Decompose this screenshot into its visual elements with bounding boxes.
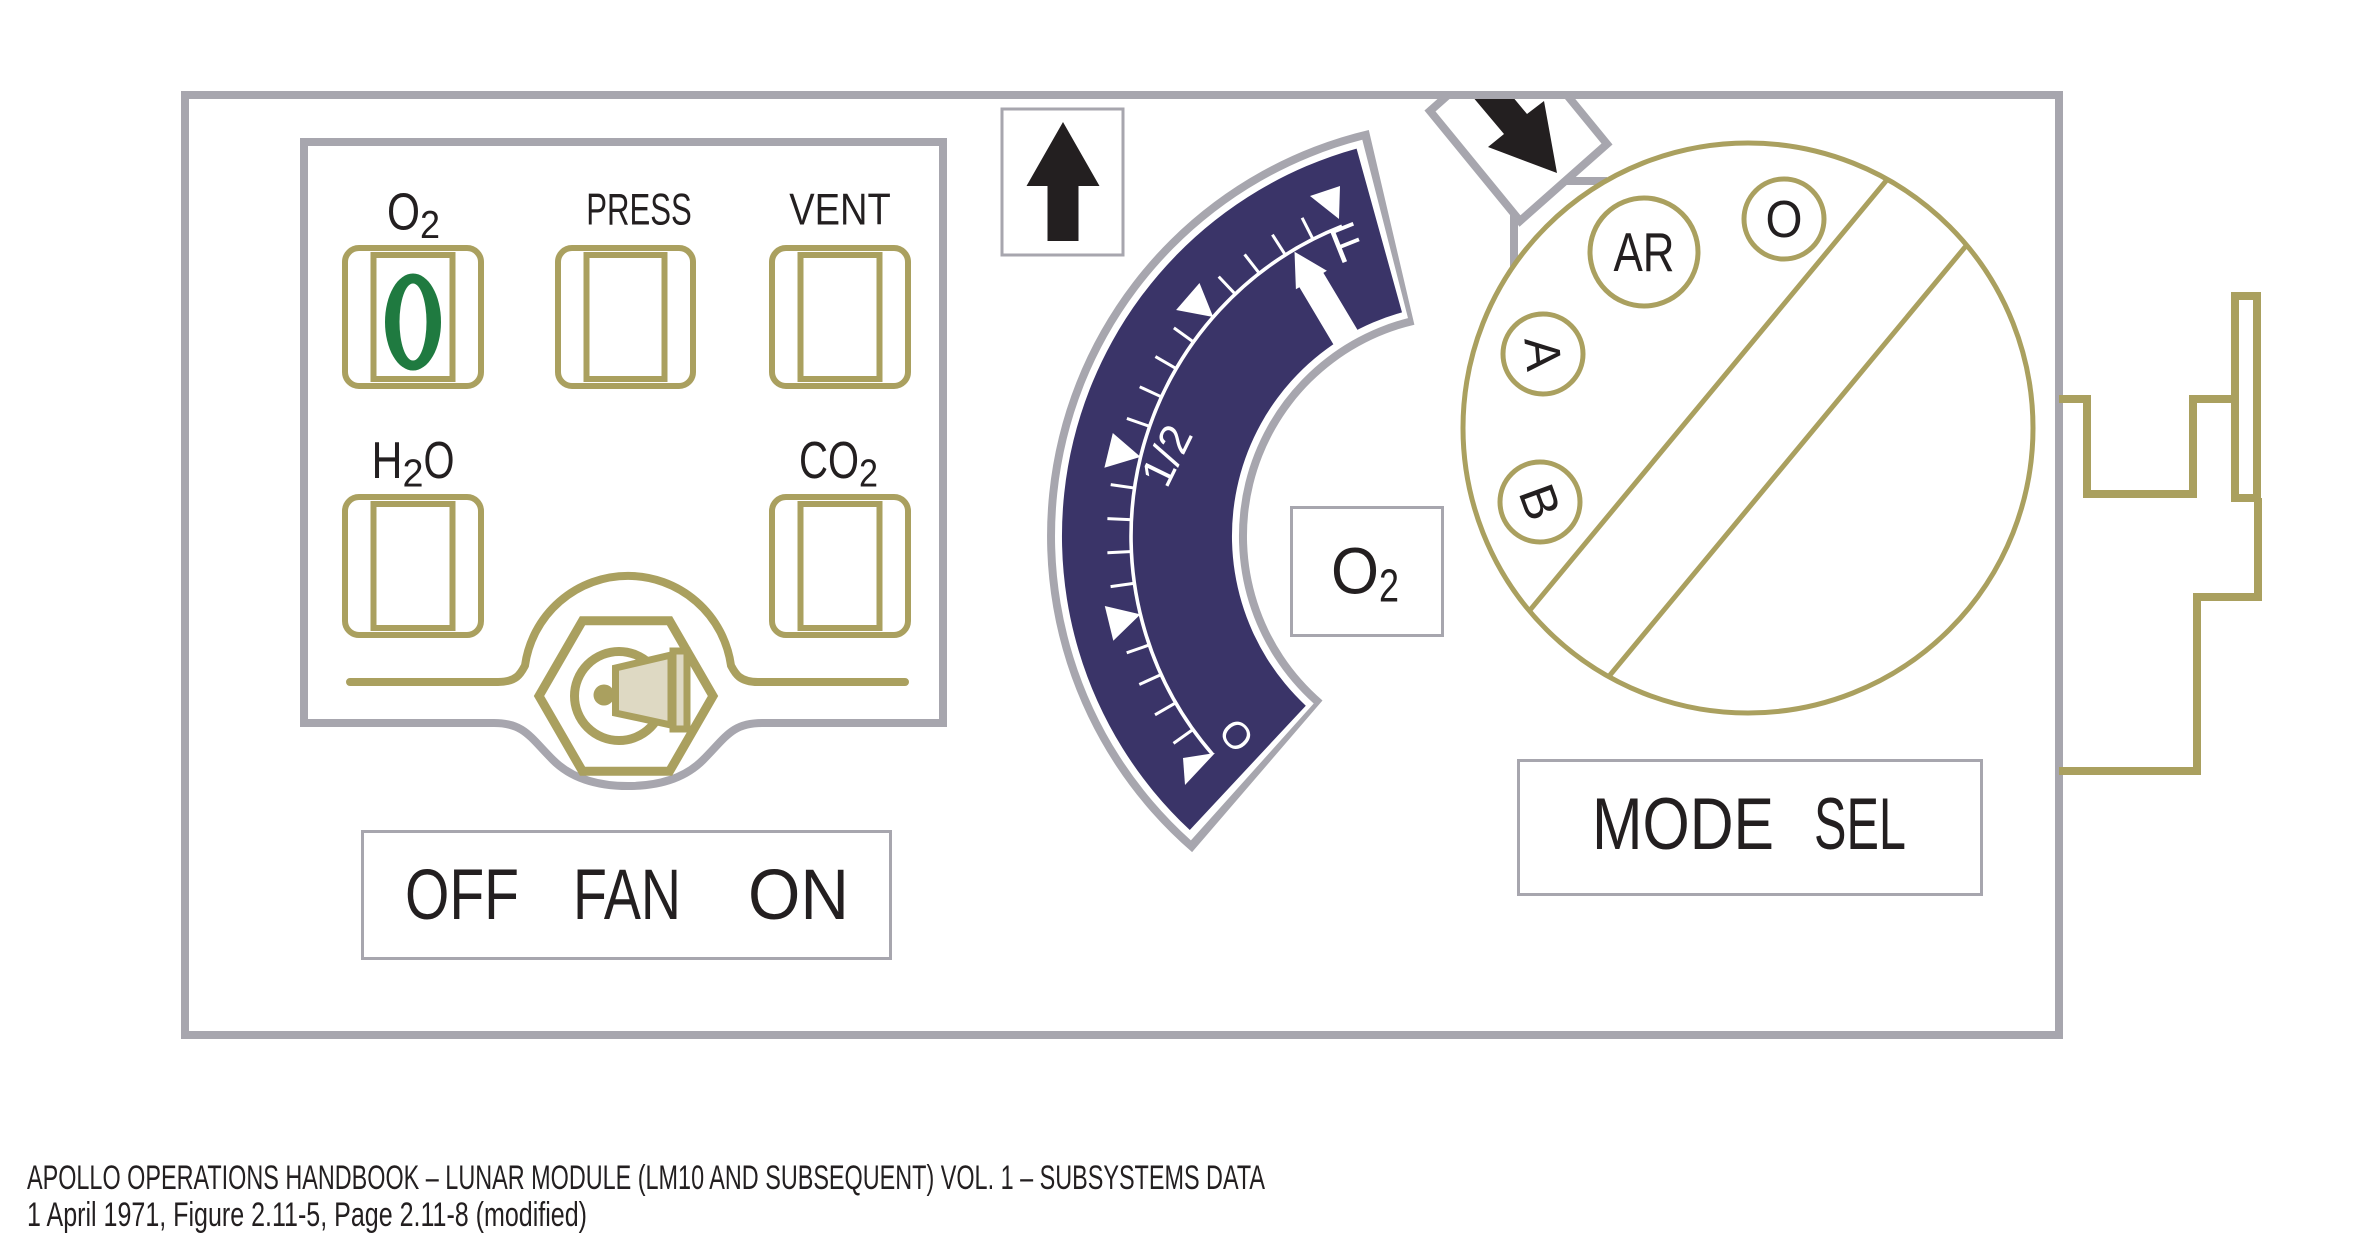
svg-text:2: 2: [420, 204, 440, 247]
svg-text:MODE: MODE: [1592, 784, 1774, 865]
svg-text:SEL: SEL: [1814, 784, 1906, 865]
svg-text:AR: AR: [1614, 221, 1675, 283]
svg-text:O: O: [1766, 191, 1803, 249]
svg-text:PRESS: PRESS: [586, 186, 692, 235]
svg-text:VENT: VENT: [789, 186, 891, 235]
svg-text:C: C: [799, 432, 828, 490]
svg-text:A: A: [1513, 335, 1572, 374]
svg-text:APOLLO OPERATIONS HANDBOOK – L: APOLLO OPERATIONS HANDBOOK – LUNAR MODUL…: [27, 1159, 1265, 1197]
svg-text:2: 2: [403, 452, 424, 495]
svg-text:ON: ON: [748, 856, 849, 935]
svg-text:O: O: [1331, 534, 1379, 608]
svg-text:2: 2: [1379, 560, 1399, 612]
svg-text:H: H: [372, 432, 403, 490]
svg-text:O: O: [424, 432, 455, 490]
svg-text:O: O: [387, 184, 420, 242]
svg-text:O: O: [828, 432, 859, 490]
svg-text:2: 2: [859, 452, 878, 495]
svg-text:1 April 1971, Figure 2.11-5, P: 1 April 1971, Figure 2.11-5, Page 2.11-8…: [27, 1196, 587, 1234]
svg-text:FAN: FAN: [573, 856, 681, 935]
svg-text:OFF: OFF: [405, 856, 519, 935]
